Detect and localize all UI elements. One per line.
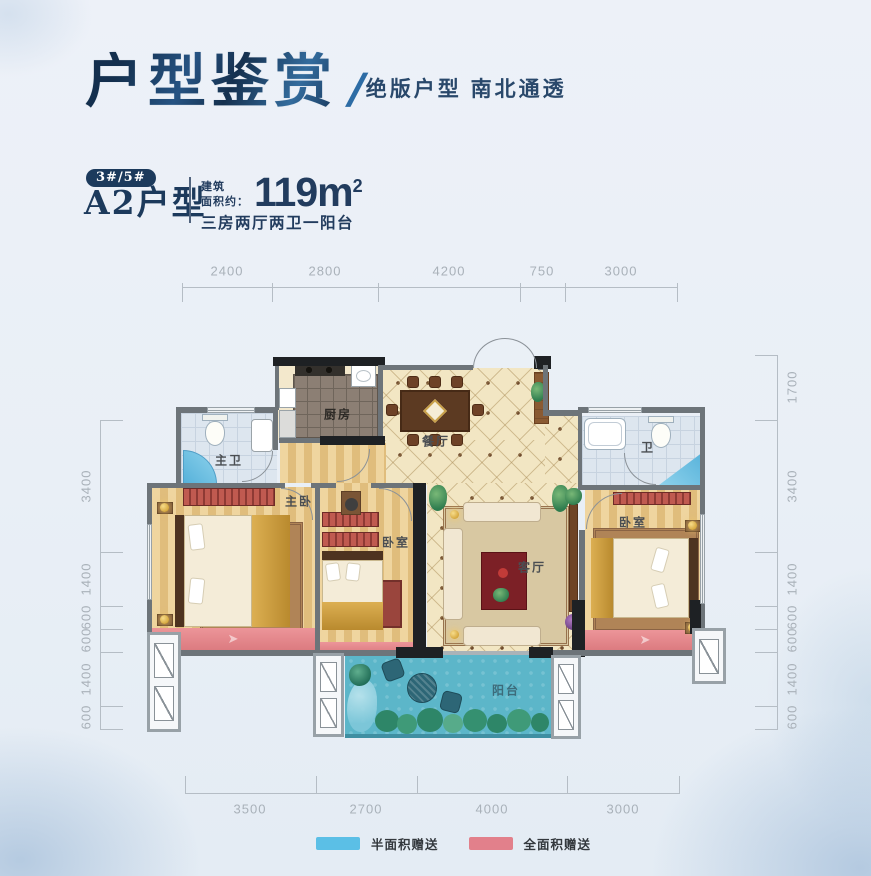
dim-label: 3500 xyxy=(234,802,267,817)
dim-label: 4200 xyxy=(433,264,466,279)
balcony-table xyxy=(407,673,437,703)
dim-tick xyxy=(677,283,678,302)
arrow-watermark-icon: ➤ xyxy=(640,632,651,648)
lamp-icon xyxy=(450,510,459,519)
dining-table xyxy=(400,390,470,432)
sofa xyxy=(443,528,463,620)
dim-line-top xyxy=(182,287,677,288)
utility-shaft xyxy=(551,655,581,739)
title-slash: / xyxy=(346,71,364,110)
area-block: 建筑 面积约： 119m2 xyxy=(201,172,362,213)
wall xyxy=(147,483,183,488)
vanity xyxy=(251,419,273,452)
plant-icon xyxy=(397,714,417,734)
poster-canvas: 户型鉴赏 / 绝版户型 南北通透 3#/5# A2户型 建筑 面积约： 119m… xyxy=(0,0,871,876)
area-label: 建筑 面积约： xyxy=(201,172,249,211)
shaft-window-icon xyxy=(320,662,337,692)
wardrobe xyxy=(322,532,379,547)
window xyxy=(588,407,642,413)
dim-tick xyxy=(316,776,317,794)
dim-label: 1700 xyxy=(785,371,800,404)
plant-icon xyxy=(531,713,549,732)
dim-tick xyxy=(100,706,123,707)
bed-blanket xyxy=(322,602,383,630)
pillow xyxy=(187,523,205,551)
shaft-window-icon xyxy=(558,664,574,694)
legend-label: 半面积赠送 xyxy=(371,834,439,853)
arrow-watermark-icon: ➤ xyxy=(228,631,239,647)
sliding-door xyxy=(443,651,533,655)
dim-label: 4000 xyxy=(476,802,509,817)
page-subtitle: 绝版户型 南北通透 xyxy=(366,73,567,110)
dim-line-bottom xyxy=(185,793,679,794)
dim-label: 750 xyxy=(530,264,555,279)
dim-tick xyxy=(272,283,273,302)
balcony-railing xyxy=(345,734,553,738)
dim-label: 600 xyxy=(785,705,800,730)
dim-tick xyxy=(755,606,778,607)
wall xyxy=(275,366,279,410)
wall-black xyxy=(413,483,426,655)
kitchen-cabinet xyxy=(279,410,296,438)
wall xyxy=(273,410,278,450)
area-label-line2: 面积约： xyxy=(201,196,249,208)
dim-tick xyxy=(100,606,123,607)
dim-label: 600 xyxy=(785,628,800,653)
fridge xyxy=(279,388,296,408)
bathtub-icon xyxy=(584,418,626,450)
room-label-balcony: 阳台 xyxy=(492,682,520,699)
wall xyxy=(543,365,548,415)
wall xyxy=(543,410,582,416)
dim-tick xyxy=(755,652,778,653)
dim-tick xyxy=(417,776,418,794)
dining-chair xyxy=(407,376,419,388)
window xyxy=(700,514,705,604)
dim-label: 2700 xyxy=(350,802,383,817)
bed-headboard xyxy=(175,515,184,627)
dim-line-left xyxy=(100,420,101,729)
area-exponent: 2 xyxy=(353,176,362,196)
entry-door-arc xyxy=(473,338,505,368)
dim-label: 3000 xyxy=(607,802,640,817)
area-number: 119m xyxy=(254,169,353,215)
dining-chair xyxy=(472,404,484,416)
dim-label: 2800 xyxy=(309,264,342,279)
dim-label: 3400 xyxy=(785,470,800,503)
room-label-bedroom-3: 卧室 xyxy=(619,514,647,531)
plant-icon xyxy=(487,714,507,733)
dim-label: 3000 xyxy=(605,264,638,279)
plant-icon xyxy=(375,710,399,732)
dim-label: 2400 xyxy=(211,264,244,279)
header: 户型鉴赏 / 绝版户型 南北通透 xyxy=(85,52,567,110)
dim-tick xyxy=(755,629,778,630)
dim-tick xyxy=(565,283,566,302)
dim-label: 600 xyxy=(79,628,94,653)
dim-tick xyxy=(100,629,123,630)
toilet-tank xyxy=(648,416,674,423)
dim-tick xyxy=(755,729,778,730)
lamp-icon xyxy=(160,503,169,512)
dim-tick xyxy=(378,283,379,302)
dim-tick xyxy=(100,729,123,730)
dining-chair xyxy=(386,404,398,416)
room-label-kitchen: 厨房 xyxy=(324,406,352,423)
area-value: 119m2 xyxy=(254,172,362,213)
entry-door-arc xyxy=(505,338,537,368)
divider xyxy=(189,177,191,223)
dim-tick xyxy=(567,776,568,794)
chair xyxy=(345,498,358,511)
wall xyxy=(578,413,582,487)
flower-icon xyxy=(498,568,508,578)
window xyxy=(207,407,255,413)
dim-label: 1400 xyxy=(79,663,94,696)
room-label-bath: 卫 xyxy=(641,439,655,456)
page-title: 户型鉴赏 xyxy=(85,52,337,110)
plant-icon xyxy=(417,708,443,732)
utility-shaft xyxy=(147,632,181,732)
dim-tick xyxy=(755,420,778,421)
floor-plan: ➤ ➤ xyxy=(145,352,730,750)
wall xyxy=(315,483,320,655)
shaft-window-icon xyxy=(320,698,337,728)
bed-mattress xyxy=(613,538,689,618)
shaft-window-icon xyxy=(558,700,574,730)
dim-label: 600 xyxy=(79,705,94,730)
bed-blanket xyxy=(591,538,613,618)
dining-chair xyxy=(451,434,463,446)
dim-tick xyxy=(100,552,123,553)
dim-label: 1400 xyxy=(79,563,94,596)
window xyxy=(147,524,152,600)
dim-tick xyxy=(100,420,123,421)
dim-tick xyxy=(182,283,183,302)
wall xyxy=(579,530,585,600)
dim-tick xyxy=(185,776,186,794)
wall xyxy=(320,483,336,488)
legend-swatch-blue xyxy=(316,837,360,850)
wall-black xyxy=(320,436,385,445)
bed-headboard xyxy=(322,551,383,560)
bed-blanket xyxy=(252,515,290,627)
layout-description: 三房两厅两卫一阳台 xyxy=(201,211,354,233)
room-label-living: 客厅 xyxy=(518,559,546,576)
room-label-dining: 餐厅 xyxy=(422,433,450,450)
pillow xyxy=(188,577,206,604)
wall-black xyxy=(273,357,385,366)
dining-chair xyxy=(429,376,441,388)
corridor xyxy=(280,443,386,483)
utility-shaft xyxy=(692,628,726,684)
pillow xyxy=(325,562,341,582)
wall-black xyxy=(572,600,585,657)
dim-line-right xyxy=(777,355,778,729)
room-label-master-bath: 主卫 xyxy=(215,452,243,469)
wall xyxy=(181,483,285,488)
wall xyxy=(147,650,426,656)
area-label-line1: 建筑 xyxy=(201,181,225,193)
hallway-east xyxy=(545,414,580,487)
wall xyxy=(371,483,415,488)
legend-swatch-red xyxy=(469,837,513,850)
toilet-icon xyxy=(205,421,225,446)
dim-label: 600 xyxy=(785,605,800,630)
plant-icon xyxy=(507,709,531,732)
sofa xyxy=(463,626,541,646)
dim-label: 1400 xyxy=(785,563,800,596)
tv-cabinet xyxy=(569,504,578,612)
wall xyxy=(176,407,181,488)
dim-tick xyxy=(755,706,778,707)
dim-tick xyxy=(679,776,680,794)
sofa xyxy=(463,502,541,522)
room-label-bedroom-2: 卧室 xyxy=(382,534,410,551)
dim-tick xyxy=(755,552,778,553)
shaft-window-icon xyxy=(154,643,173,679)
dim-label: 600 xyxy=(79,605,94,630)
wall-black xyxy=(529,647,553,658)
dim-label: 1400 xyxy=(785,663,800,696)
dim-tick xyxy=(755,355,778,356)
sink-icon xyxy=(351,365,376,387)
wall xyxy=(578,485,705,490)
legend-item-full-area: 全面积赠送 xyxy=(469,834,592,853)
wardrobe xyxy=(183,488,275,506)
legend-label: 全面积赠送 xyxy=(524,834,592,853)
dim-tick xyxy=(100,652,123,653)
legend: 半面积赠送 全面积赠送 xyxy=(316,834,591,853)
shaft-window-icon xyxy=(154,686,173,722)
dim-tick xyxy=(520,283,521,302)
shaft-window-icon xyxy=(699,639,718,674)
lamp-icon xyxy=(450,630,459,639)
toilet-tank xyxy=(202,414,228,421)
wall xyxy=(378,365,383,440)
wall xyxy=(381,365,473,370)
plant-icon xyxy=(463,709,487,732)
legend-item-half-area: 半面积赠送 xyxy=(316,834,439,853)
plant-icon xyxy=(443,714,463,733)
dim-label: 3400 xyxy=(79,470,94,503)
wall xyxy=(279,438,321,443)
lamp-icon xyxy=(688,521,697,530)
plant-icon xyxy=(565,488,582,505)
pillow xyxy=(345,562,361,582)
room-label-master-bedroom: 主卧 xyxy=(285,493,313,510)
utility-shaft xyxy=(313,653,344,737)
dining-chair xyxy=(407,434,419,446)
wardrobe xyxy=(613,492,691,505)
dining-chair xyxy=(451,376,463,388)
lamp-icon xyxy=(160,615,169,624)
wall-black xyxy=(396,647,443,658)
